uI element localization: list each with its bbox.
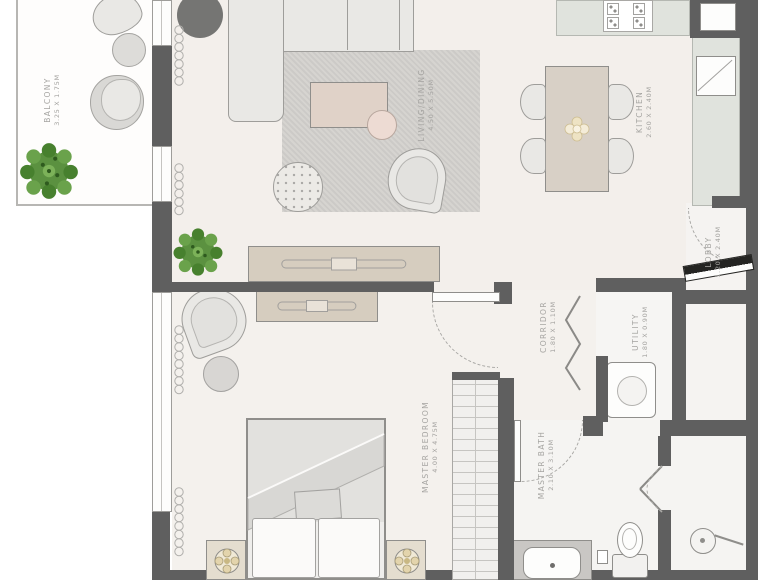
sink-divider — [698, 60, 733, 92]
kitchen-sink — [696, 56, 736, 96]
curtain-coil-icon — [166, 0, 192, 580]
toilet-bowl-inner — [622, 528, 637, 550]
room-label-master-bedroom: MASTER BEDROOM 4.00 X 4.75M — [422, 401, 438, 493]
stove-burner — [607, 17, 619, 29]
wall-shower-partition — [658, 510, 671, 574]
wall-right-upper — [740, 0, 758, 206]
balcony-table — [112, 33, 146, 67]
ottoman — [203, 356, 239, 392]
lounge-chair — [90, 75, 144, 130]
table-lamp — [213, 547, 241, 575]
bedroom-door-leaf — [432, 292, 500, 302]
room-name: LIVING/DINING — [418, 68, 426, 141]
dresser-knob — [306, 300, 328, 312]
room-label-corridor: CORRIDOR 1.80 X 1.10M — [540, 301, 556, 353]
plant-icon — [170, 224, 226, 280]
room-dims: 4.00 X 4.75M — [432, 421, 439, 473]
room-name: BALCONY — [44, 77, 52, 123]
room-name: CORRIDOR — [540, 301, 548, 353]
table-centerpiece — [564, 116, 590, 142]
room-label-utility: UTILITY 1.80 X 0.90M — [632, 306, 648, 358]
toilet-bowl — [617, 522, 643, 558]
shower-head — [690, 528, 716, 554]
vanity — [512, 540, 592, 580]
sofa-chaise — [228, 0, 284, 122]
pouf — [273, 162, 323, 212]
side-table — [367, 110, 397, 140]
wall-bedroom-living — [172, 282, 434, 292]
balcony-railing-bottom — [16, 204, 156, 206]
wall-utility-right — [672, 280, 686, 422]
wardrobe-shelves — [452, 372, 500, 580]
dresser — [256, 290, 378, 322]
shower-doors-icon — [630, 460, 670, 516]
sofa-armrest-line — [399, 0, 400, 50]
wall-lobby-bottom — [686, 290, 748, 304]
floor-plan: BALCONY 3.25 X 1.75M LIVING/DINING 4.50 … — [0, 0, 780, 580]
bifold-door-icon — [558, 294, 588, 392]
room-label-balcony: BALCONY 3.25 X 1.75M — [44, 74, 60, 126]
dining-chair — [520, 84, 546, 120]
accent-chair-seat — [392, 153, 441, 206]
toilet-paper-holder — [597, 550, 608, 564]
room-label-master-bath: MASTER BATH 2.10 X 3.10M — [538, 431, 554, 500]
shower-head-center — [700, 538, 705, 543]
room-dims: 1.20 X 2.40M — [715, 226, 722, 278]
stove-burner — [633, 3, 645, 15]
sofa-cushion-divider — [347, 0, 348, 50]
console-knob — [331, 258, 357, 271]
wall-bath-top — [660, 420, 748, 436]
room-dims: 1.80 X 1.10M — [550, 301, 557, 353]
bath-door-leaf — [514, 420, 521, 482]
tv-console — [248, 246, 440, 282]
wall-bath-left — [498, 378, 514, 580]
room-dims: 2.60 X 2.40M — [646, 86, 653, 138]
faucet — [550, 563, 555, 568]
room-dims: 1.80 X 0.90M — [642, 306, 649, 358]
wall-utility-left — [596, 356, 608, 422]
lounge-chair-cushion — [101, 79, 141, 121]
armchair-seat — [185, 291, 244, 350]
washer — [606, 362, 656, 418]
wardrobe-top-wall — [452, 372, 500, 380]
room-dims: 4.50 X 5.50M — [428, 79, 435, 131]
wall-bath-stub — [583, 416, 603, 436]
room-name: MASTER BEDROOM — [422, 401, 430, 493]
pillow — [252, 518, 316, 578]
pillow — [318, 518, 380, 578]
room-dims: 3.25 X 1.75M — [54, 74, 61, 126]
room-name: MASTER BATH — [538, 431, 546, 500]
fridge-niche — [700, 3, 736, 31]
room-label-living-dining: LIVING/DINING 4.50 X 5.50M — [418, 68, 434, 141]
room-label-lobby: LOBBY 1.20 X 2.40M — [705, 226, 721, 278]
plant-icon — [16, 138, 82, 204]
stove-burner — [607, 3, 619, 15]
room-name: UTILITY — [632, 313, 640, 351]
bed-cushion — [294, 488, 342, 521]
room-dims: 2.10 X 3.10M — [548, 439, 555, 491]
room-name: LOBBY — [705, 236, 713, 267]
table-lamp — [393, 547, 421, 575]
room-name: KITCHEN — [636, 91, 644, 133]
stove-burner — [633, 17, 645, 29]
dining-chair — [520, 138, 546, 174]
bed — [246, 418, 386, 580]
room-label-kitchen: KITCHEN 2.60 X 2.40M — [636, 86, 652, 138]
washer-drum — [617, 376, 647, 406]
